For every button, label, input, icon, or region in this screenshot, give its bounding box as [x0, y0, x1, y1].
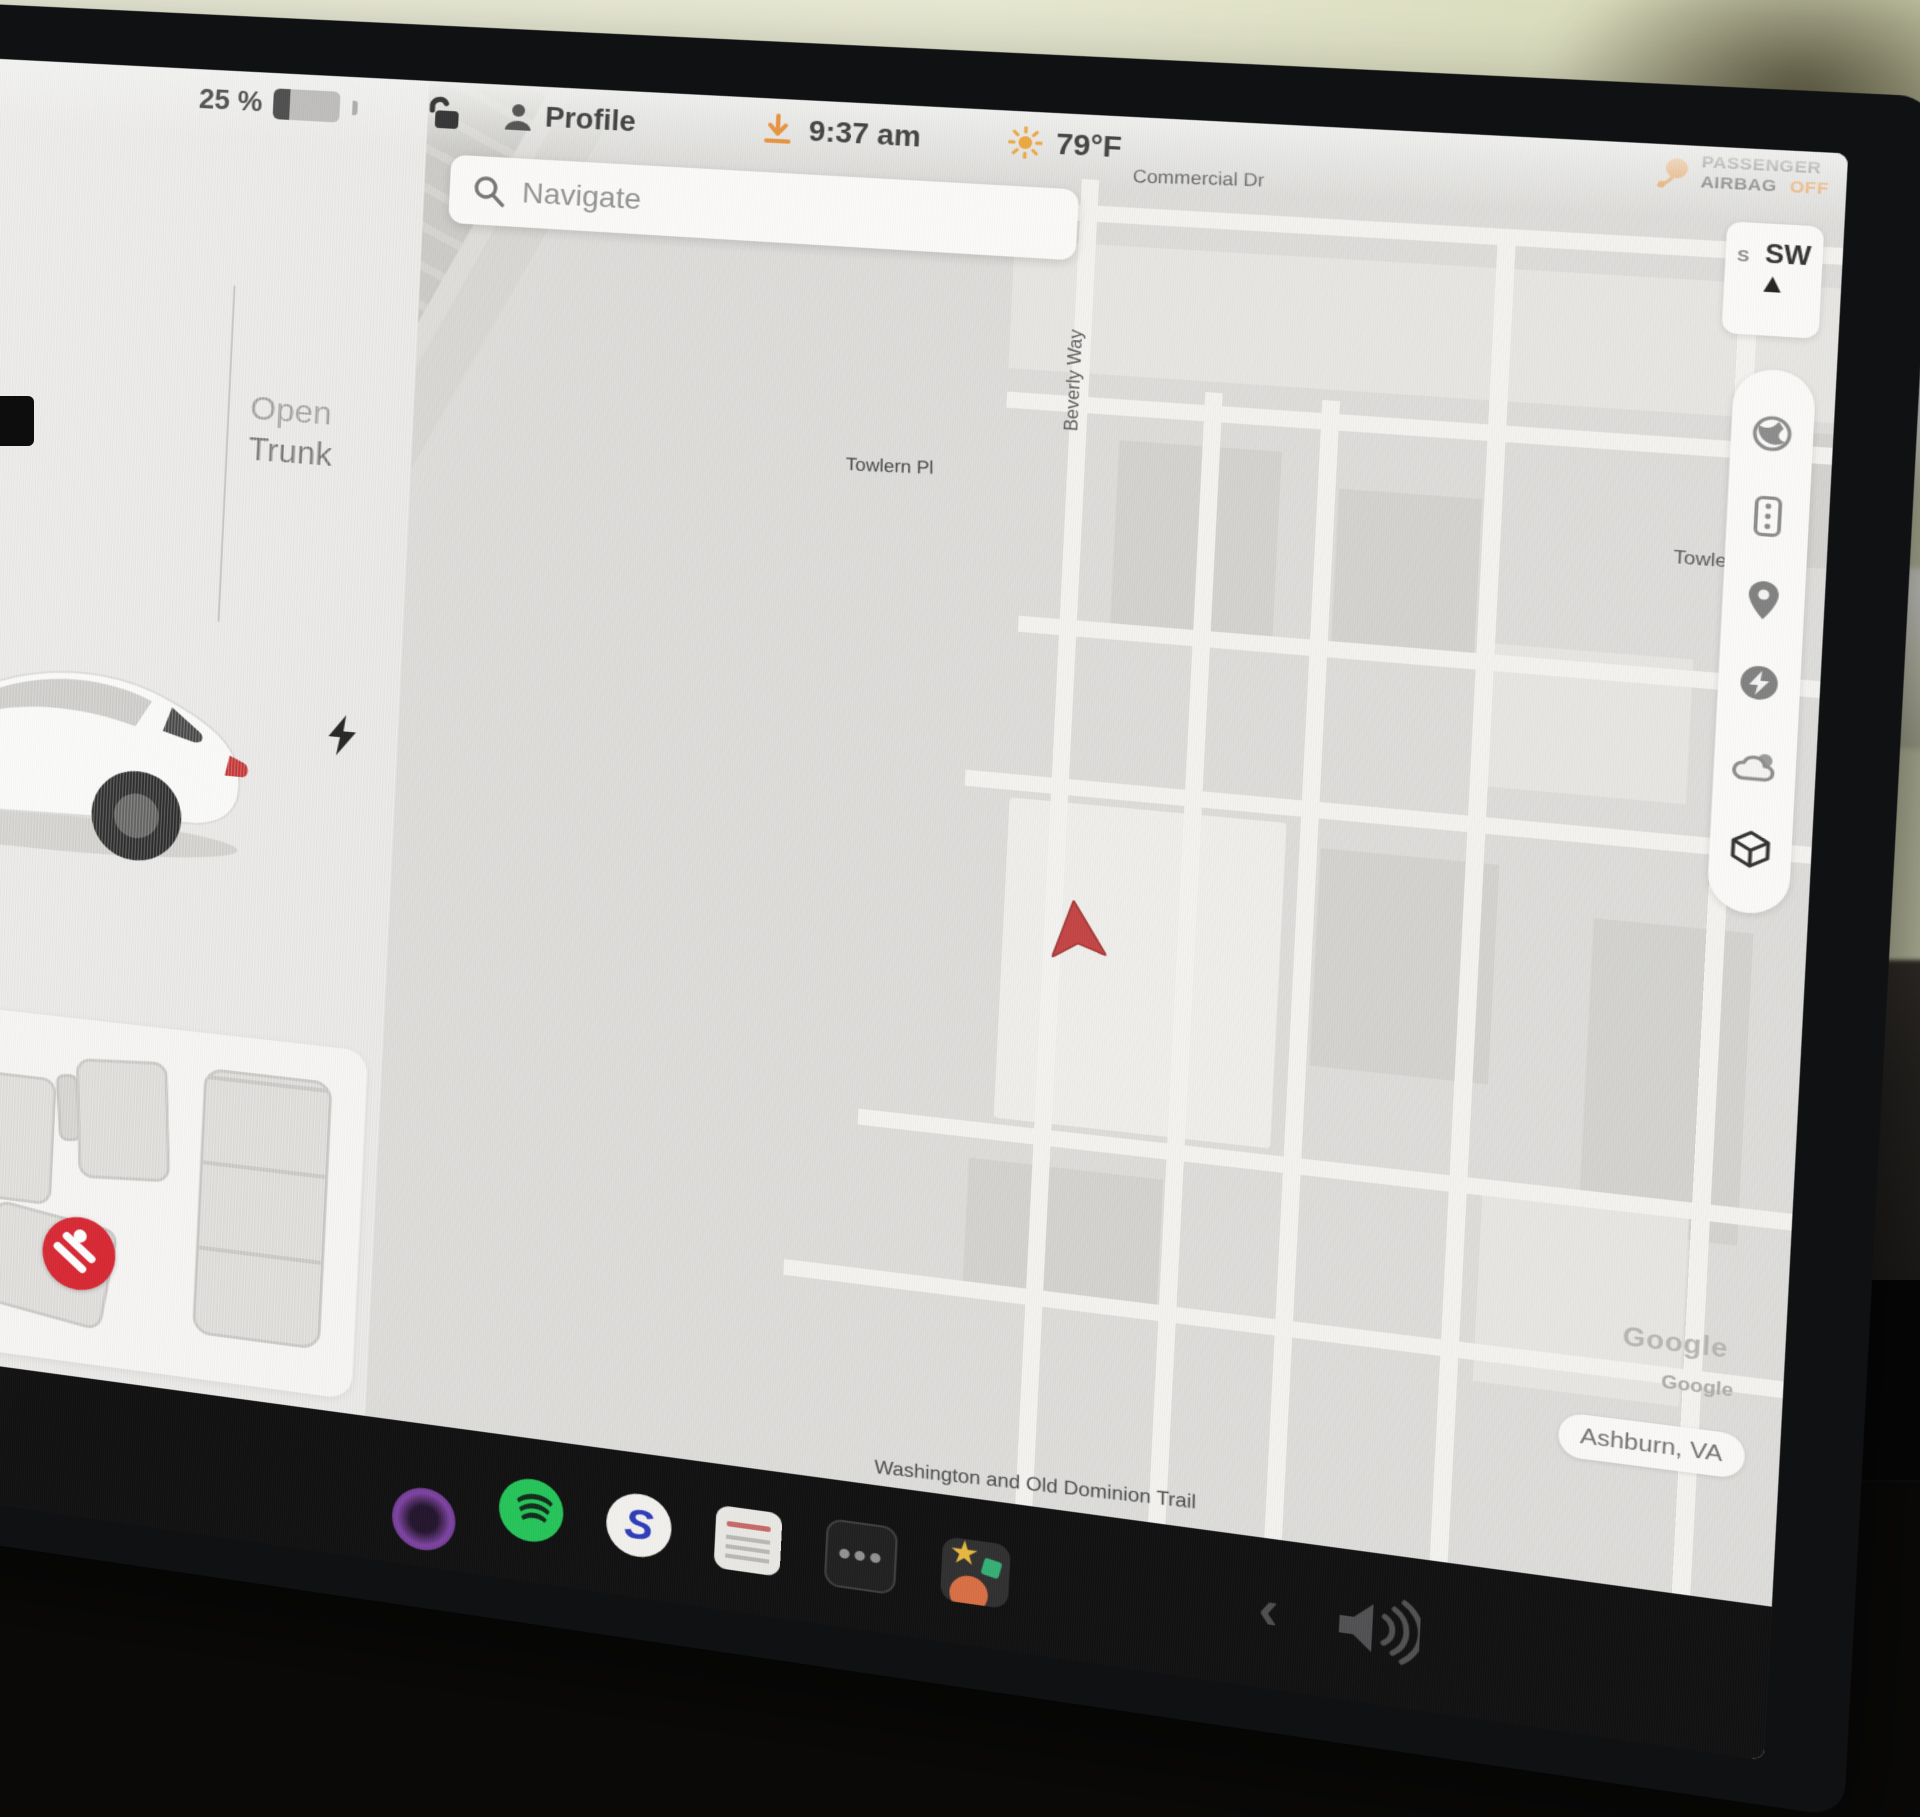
- current-area-chip: Ashburn, VA: [1557, 1412, 1746, 1480]
- map-block: [1331, 489, 1482, 653]
- view-3d-button[interactable]: [1727, 828, 1774, 872]
- photo-foreground-object: [0, 396, 34, 446]
- sun-icon: [1007, 126, 1043, 160]
- magnifier-icon: [472, 175, 505, 208]
- supercharger-lightning-icon: [1737, 663, 1781, 704]
- app-icon-purple[interactable]: [391, 1484, 457, 1555]
- traffic-button[interactable]: [1744, 495, 1791, 538]
- charge-port-lightning-icon[interactable]: [326, 713, 359, 757]
- superchargers-button[interactable]: [1736, 661, 1783, 705]
- battery-icon-nub: [352, 100, 358, 115]
- s-app-icon[interactable]: S: [605, 1490, 673, 1562]
- satellite-view-button[interactable]: [1749, 412, 1796, 455]
- temperature-label: 79°F: [1055, 128, 1122, 165]
- profile-label: Profile: [544, 101, 636, 138]
- open-trunk-label-line2: Trunk: [248, 428, 334, 475]
- navigate-placeholder: Navigate: [521, 176, 642, 216]
- map-block: [1008, 240, 1848, 424]
- map-pin-icon: [1745, 578, 1782, 621]
- weather-indicator: [1007, 126, 1043, 160]
- compass-widget[interactable]: S SW ▲: [1722, 221, 1825, 339]
- tesla-touchscreen[interactable]: 25 % Profile: [0, 56, 1848, 1760]
- toybox-app-icon[interactable]: ★: [940, 1536, 1011, 1609]
- battery-icon: [272, 88, 340, 122]
- front-right-seat: [76, 1058, 170, 1182]
- more-apps-button[interactable]: •••: [824, 1518, 899, 1596]
- open-trunk-label-line1: Open: [249, 387, 335, 434]
- profile-menu[interactable]: Profile: [502, 99, 637, 138]
- clock: 9:37 am: [808, 115, 922, 154]
- cloud-sun-icon: [1732, 748, 1778, 785]
- toybox-square-icon: [980, 1557, 1002, 1579]
- collapse-chevron-button[interactable]: ‹: [1257, 1587, 1279, 1633]
- panel-divider: [217, 286, 235, 622]
- rear-bench-seat: [192, 1068, 333, 1351]
- s-app-glyph: S: [623, 1500, 654, 1551]
- seatbelt-status-card: [0, 1000, 368, 1400]
- navigation-map[interactable]: Commercial Dr Beverly Way Towlern Pl Tow…: [365, 81, 1848, 1607]
- compass-heading: SW: [1764, 239, 1812, 271]
- street-label-towlern: Towlern Pl: [846, 454, 934, 479]
- weather-button[interactable]: [1731, 744, 1778, 788]
- volume-speaker-icon[interactable]: [1331, 1590, 1422, 1668]
- battery-status: 25 %: [198, 83, 358, 123]
- vehicle-render[interactable]: [0, 550, 281, 892]
- toybox-arc-icon: [949, 1573, 989, 1609]
- software-update-indicator[interactable]: [762, 113, 794, 146]
- outside-temperature: 79°F: [1055, 128, 1122, 165]
- time-label: 9:37 am: [808, 115, 922, 154]
- compass-arrow-icon: ▲: [1723, 267, 1821, 302]
- vehicle-status-panel: Open Trunk: [0, 56, 430, 1416]
- more-apps-glyph: •••: [837, 1533, 886, 1581]
- cube-3d-icon: [1730, 829, 1772, 871]
- open-trunk-button[interactable]: Open Trunk: [248, 387, 336, 475]
- lock-button[interactable]: [427, 95, 460, 130]
- toybox-star-icon: ★: [948, 1536, 980, 1574]
- street-label-towle: Towle: [1673, 546, 1728, 572]
- battery-percent-label: 25 %: [198, 83, 263, 118]
- vehicle-location-arrow: [1046, 900, 1106, 958]
- battery-icon-fill: [272, 88, 290, 120]
- pins-button[interactable]: [1740, 578, 1787, 622]
- unlocked-padlock-icon: [427, 95, 460, 130]
- software-update-download-icon: [762, 113, 794, 146]
- person-icon: [502, 100, 536, 133]
- tesla-touchscreen-bezel: 25 % Profile: [0, 0, 1920, 1817]
- traffic-light-icon: [1753, 495, 1782, 537]
- spotify-app-icon[interactable]: [498, 1475, 565, 1546]
- globe-icon: [1750, 413, 1794, 454]
- front-left-seat: [0, 1068, 57, 1205]
- calendar-app-icon[interactable]: [714, 1505, 783, 1577]
- compass-minor-tick: S: [1737, 246, 1750, 266]
